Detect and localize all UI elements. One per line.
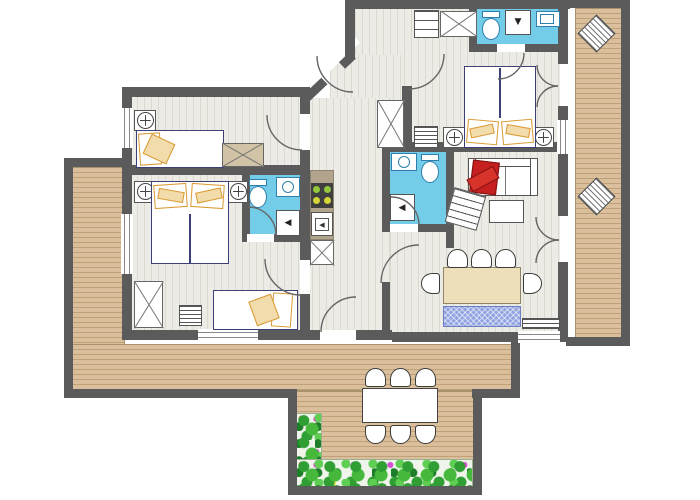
- dining-chair-3: [495, 249, 516, 268]
- terrace-wall-east: [511, 342, 520, 398]
- french-door-bed3-bottom: [536, 85, 557, 106]
- french-door-living-bottom: [535, 239, 558, 262]
- bath3-toilet-bowl: [482, 18, 500, 40]
- bath3-shower-arrow-icon: ▼: [509, 13, 527, 31]
- flower-bed-bottom: [295, 459, 473, 488]
- kitchen-faucet-icon: ◀: [315, 219, 329, 230]
- balcony-wall-south: [566, 337, 630, 346]
- terrace-wall-west: [64, 158, 73, 397]
- balcony-wall-east: [621, 0, 630, 346]
- bed2-lamp-right: [230, 183, 247, 200]
- wall-corridor-east: [382, 282, 390, 340]
- french-door-bed3-top: [536, 64, 557, 85]
- wall-bath2-west: [382, 150, 390, 232]
- door-arc-bed1: [266, 114, 301, 149]
- door-gap-bath3: [497, 44, 525, 52]
- bath1-sink-basin: [282, 181, 294, 193]
- sofa-arm-right: [530, 158, 538, 196]
- terrace-chair-top-1: [365, 368, 386, 387]
- bath2-toilet-bowl: [421, 161, 439, 183]
- door-arc-bath1: [247, 206, 275, 234]
- bed1-lamp: [137, 112, 154, 129]
- window-bed3-balcony: [557, 120, 569, 154]
- wall-bed1-north: [122, 87, 310, 97]
- window-living-south: [518, 331, 560, 343]
- living-sideboard: [522, 318, 560, 329]
- terrace-dining-table: [362, 388, 438, 423]
- terrace-left-deck: [72, 167, 125, 348]
- dining-chair-1: [447, 249, 468, 268]
- door-arc-terrace: [320, 296, 355, 331]
- door-arc-bed2: [264, 258, 300, 294]
- bed1-wardrobe: [222, 143, 264, 167]
- bath1-toilet-tank: [249, 179, 267, 186]
- bed2-drawers: [179, 305, 202, 326]
- bath1-toilet-bowl: [249, 186, 267, 208]
- door-arc-bath2: [390, 196, 418, 224]
- dining-chair-left: [421, 273, 440, 294]
- wall-bed3-west: [345, 0, 355, 58]
- door-arc-living: [380, 244, 418, 282]
- kitchen-cabinet: [310, 240, 334, 265]
- bed3-lamp-right: [535, 129, 552, 146]
- window-bed2-south: [198, 329, 258, 341]
- terrace-wall-north: [64, 158, 126, 167]
- wall-bed3-north: [345, 0, 570, 9]
- bath3-sink-basin: [540, 14, 554, 24]
- window-bed1-west: [121, 108, 133, 148]
- terrace-chair-top-2: [390, 368, 411, 387]
- bed3-cabinet: [414, 10, 439, 38]
- stove-burner-4: [324, 197, 331, 204]
- bed3-dresser: [414, 126, 438, 148]
- bath2-sink-basin: [398, 156, 410, 168]
- bed3-lamp-left: [446, 129, 463, 146]
- bath2-toilet-tank: [421, 154, 439, 161]
- window-bed2-west: [121, 214, 133, 274]
- bed2-bed-split: [189, 214, 191, 264]
- terrace-chair-top-3: [415, 368, 436, 387]
- stove-burner-3: [313, 197, 320, 204]
- door-arc-bed3: [408, 53, 443, 88]
- living-cabinet: [377, 100, 404, 148]
- terrace-bottom-deck: [72, 344, 512, 391]
- terrace-wall-south-a: [64, 389, 297, 398]
- lower-terrace-wall-east: [473, 394, 482, 495]
- dining-chair-2: [471, 249, 492, 268]
- bath1-shower-arrow-icon: ◀: [279, 216, 297, 230]
- door-arc-entrance: [316, 55, 352, 91]
- sofa-seat-split: [505, 167, 506, 195]
- lower-terrace-wall-south: [288, 486, 482, 495]
- stove-burner-2: [324, 186, 331, 193]
- bed2-wardrobe: [134, 281, 163, 328]
- lower-terrace-wall-west: [288, 394, 297, 495]
- bed3-wardrobe: [440, 11, 477, 37]
- coffee-table: [489, 200, 524, 223]
- wall-east-a: [558, 0, 568, 64]
- french-door-living-top: [535, 216, 558, 239]
- floor-plan: ◀◀◀▼: [0, 0, 700, 500]
- dining-table: [443, 267, 521, 304]
- balcony-deck: [575, 8, 622, 338]
- door-arc-bath3: [497, 52, 523, 78]
- wall-east-c: [558, 262, 568, 342]
- bath3-toilet-tank: [482, 11, 500, 18]
- dining-rug: [443, 306, 521, 327]
- stove-burner-1: [313, 186, 320, 193]
